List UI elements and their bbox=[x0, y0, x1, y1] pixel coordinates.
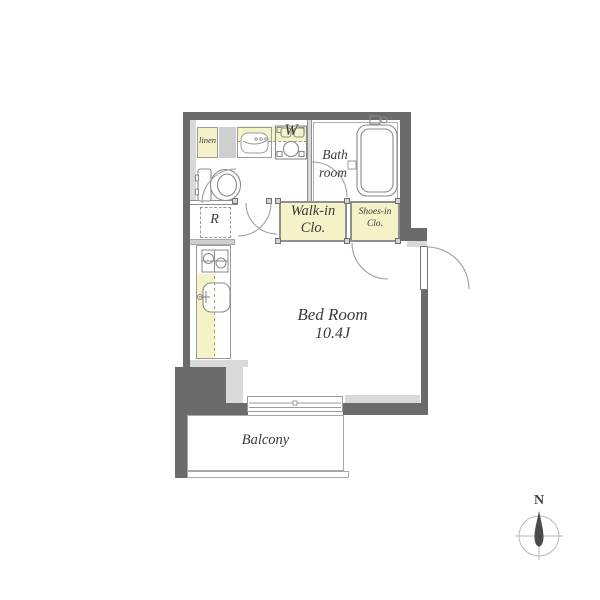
floor-plan: linen W Bath room R Walk-in Clo. Shoes-i… bbox=[0, 0, 600, 600]
wall-hall-partition bbox=[190, 200, 238, 205]
entrance-door-arc bbox=[427, 247, 469, 289]
wall-face-window-right bbox=[345, 395, 420, 403]
wall-face-left bbox=[190, 120, 196, 203]
washer-label: W bbox=[275, 123, 307, 140]
refrigerator-label: R bbox=[200, 213, 229, 228]
wall-window-left bbox=[226, 403, 248, 415]
washroom-door-arc bbox=[202, 169, 236, 203]
balcony-railing bbox=[187, 471, 349, 478]
storage-block bbox=[219, 127, 236, 158]
bedroom-label: Bed Room bbox=[270, 306, 395, 324]
wall-post bbox=[266, 198, 272, 204]
wall-post bbox=[395, 198, 401, 204]
wall-entry-jut bbox=[400, 228, 427, 241]
wall-post bbox=[344, 238, 350, 244]
bedroom-window bbox=[247, 396, 343, 412]
shoes-label-line2: Clo. bbox=[350, 220, 400, 230]
walkin-label-line1: Walk-in bbox=[279, 204, 347, 219]
compass-icon bbox=[515, 511, 563, 560]
compass-north-label: N bbox=[524, 494, 554, 509]
wall-post bbox=[395, 238, 401, 244]
entry-inner-door-arc bbox=[352, 243, 388, 279]
wall-face-step-v bbox=[226, 360, 243, 403]
bathroom-label-line1: Bath bbox=[310, 148, 360, 162]
bedroom-door-arc bbox=[238, 203, 271, 236]
entrance-door bbox=[420, 246, 428, 290]
kitchen-counter-yellow bbox=[197, 274, 215, 358]
toilet-icon bbox=[196, 169, 241, 201]
bathroom-label-line2: room bbox=[308, 166, 358, 180]
bedroom-size-label: 10.4J bbox=[270, 326, 395, 343]
wall-left bbox=[183, 112, 190, 370]
balcony-label: Balcony bbox=[187, 433, 344, 448]
wall-post bbox=[275, 238, 281, 244]
linen-label: linen bbox=[196, 136, 219, 145]
wall-balcony-left bbox=[175, 367, 187, 478]
wall-bottom-right bbox=[343, 403, 428, 415]
wall-right-upper bbox=[400, 112, 411, 230]
wall-right-lower bbox=[421, 289, 428, 415]
wall-post bbox=[232, 198, 238, 204]
wall-top bbox=[183, 112, 411, 120]
walkin-label-line2: Clo. bbox=[279, 221, 347, 236]
compass-needle bbox=[535, 511, 544, 547]
shoes-label-line1: Shoes-in bbox=[350, 208, 400, 218]
hall-door-arc bbox=[246, 203, 277, 234]
